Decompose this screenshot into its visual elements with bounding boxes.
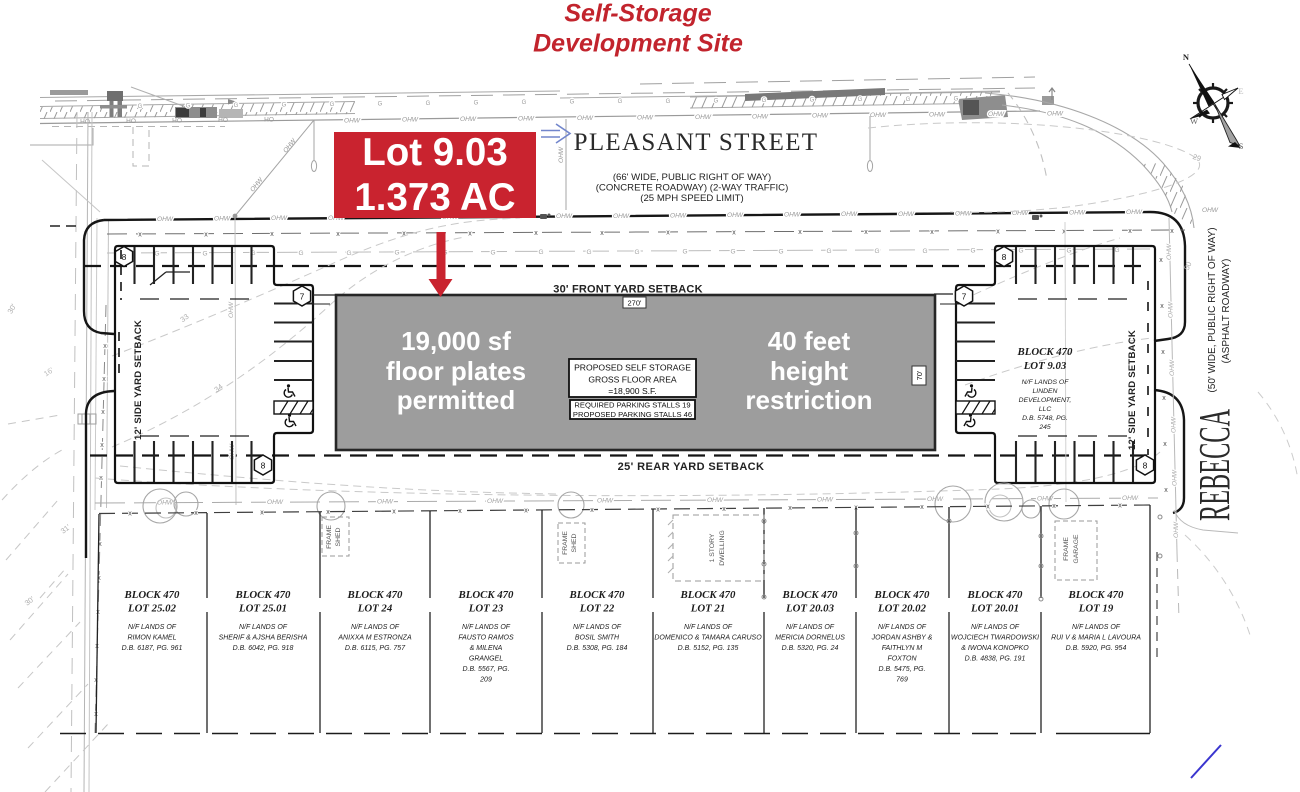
svg-text:G: G <box>954 96 959 102</box>
svg-text:OHW: OHW <box>556 213 573 220</box>
svg-text:G: G <box>1114 247 1119 254</box>
svg-text:N: N <box>1183 52 1190 62</box>
svg-text:OHW: OHW <box>282 137 298 154</box>
svg-text:G: G <box>906 97 911 103</box>
svg-text:OHW: OHW <box>518 116 535 123</box>
svg-text:& IWONA KONOPKO: & IWONA KONOPKO <box>961 645 1029 652</box>
svg-text:G: G <box>426 101 431 107</box>
svg-text:OHW: OHW <box>898 211 915 218</box>
svg-text:OHW: OHW <box>1168 301 1175 318</box>
svg-text:=18,900 S.F.: =18,900 S.F. <box>608 386 657 396</box>
svg-text:OHW: OHW <box>597 498 614 505</box>
svg-text:BLOCK 470: BLOCK 470 <box>347 589 403 601</box>
svg-text:OHW: OHW <box>613 213 630 220</box>
svg-text:FRAME: FRAME <box>562 531 569 555</box>
svg-text:OHW: OHW <box>271 215 288 222</box>
svg-text:restriction: restriction <box>745 385 872 415</box>
svg-text:OHW: OHW <box>670 212 687 219</box>
svg-text:OHW: OHW <box>929 112 946 119</box>
svg-text:G: G <box>826 248 831 255</box>
svg-text:70': 70' <box>915 370 924 380</box>
svg-text:x: x <box>788 505 792 512</box>
svg-text:x: x <box>986 504 990 511</box>
svg-text:29: 29 <box>1191 152 1202 163</box>
svg-text:40 feet: 40 feet <box>768 326 851 356</box>
svg-text:FAUSTO RAMOS: FAUSTO RAMOS <box>458 635 514 642</box>
svg-text:JORDAN ASHBY &: JORDAN ASHBY & <box>871 635 933 642</box>
svg-text:LOT 25.01: LOT 25.01 <box>238 603 287 615</box>
svg-text:G: G <box>186 104 191 110</box>
svg-text:30' FRONT YARD SETBACK: 30' FRONT YARD SETBACK <box>553 284 702 296</box>
svg-text:OHW: OHW <box>1166 243 1173 260</box>
svg-text:OHW: OHW <box>344 118 361 125</box>
svg-text:HO: HO <box>172 118 182 125</box>
svg-text:209: 209 <box>479 677 492 684</box>
svg-text:N/F LANDS OF: N/F LANDS OF <box>878 624 927 631</box>
svg-text:x: x <box>101 409 105 416</box>
svg-text:x: x <box>260 510 264 517</box>
svg-text:OHW: OHW <box>1126 209 1143 216</box>
svg-text:Development Site: Development Site <box>533 30 743 58</box>
svg-text:OHW: OHW <box>841 211 858 218</box>
svg-text:OHW: OHW <box>1069 210 1086 217</box>
svg-text:permitted: permitted <box>397 385 515 415</box>
svg-text:OHW: OHW <box>1202 207 1219 214</box>
svg-text:D.B. 6115, PG. 757: D.B. 6115, PG. 757 <box>345 645 406 652</box>
svg-text:BOSIL SMITH: BOSIL SMITH <box>575 635 620 642</box>
svg-text:x: x <box>590 507 594 514</box>
svg-text:8: 8 <box>122 252 127 262</box>
svg-text:BLOCK 470: BLOCK 470 <box>569 589 625 601</box>
svg-text:G: G <box>714 98 719 104</box>
svg-text:8: 8 <box>261 460 266 470</box>
svg-text:G: G <box>586 249 591 256</box>
svg-text:OHW: OHW <box>752 113 769 120</box>
svg-text:G: G <box>282 103 287 109</box>
svg-text:x: x <box>1062 228 1066 235</box>
svg-text:30': 30' <box>23 594 37 607</box>
svg-text:N/F LANDS OF: N/F LANDS OF <box>128 624 177 631</box>
svg-text:G: G <box>922 248 927 255</box>
svg-text:G: G <box>570 100 575 106</box>
svg-text:G: G <box>682 249 687 256</box>
svg-text:FOXTON: FOXTON <box>887 656 917 663</box>
svg-text:x: x <box>1159 257 1163 264</box>
svg-text:LOT 20.01: LOT 20.01 <box>970 603 1019 615</box>
svg-text:LOT 20.02: LOT 20.02 <box>877 603 927 615</box>
svg-text:OHW: OHW <box>988 111 1005 118</box>
svg-text:LINDEN: LINDEN <box>1033 388 1058 395</box>
svg-text:FRAME: FRAME <box>326 525 333 549</box>
svg-text:50: 50 <box>1182 260 1194 271</box>
svg-text:(25 MPH SPEED LIMIT): (25 MPH SPEED LIMIT) <box>640 193 743 204</box>
svg-text:G: G <box>858 97 863 103</box>
svg-text:x: x <box>1162 395 1166 402</box>
svg-text:30': 30' <box>5 302 18 315</box>
svg-text:LOT 20.03: LOT 20.03 <box>785 603 835 615</box>
svg-text:RIMON KAMEL: RIMON KAMEL <box>127 635 176 642</box>
svg-text:x: x <box>392 508 396 515</box>
svg-text:floor plates: floor plates <box>386 356 526 386</box>
svg-text:x: x <box>930 229 934 236</box>
svg-text:LOT 23: LOT 23 <box>468 603 504 615</box>
svg-text:N/F LANDS OF: N/F LANDS OF <box>971 624 1020 631</box>
svg-text:HO: HO <box>264 117 274 124</box>
svg-text:OHW: OHW <box>707 497 724 504</box>
svg-text:G: G <box>1018 248 1023 255</box>
svg-text:LOT 9.03: LOT 9.03 <box>1023 360 1067 372</box>
svg-text:BLOCK 470: BLOCK 470 <box>458 589 514 601</box>
svg-text:34: 34 <box>212 382 224 394</box>
svg-text:N/F LANDS OF: N/F LANDS OF <box>462 624 511 631</box>
svg-text:D.B. 5748, PG.: D.B. 5748, PG. <box>1022 415 1068 422</box>
svg-text:x: x <box>326 509 330 516</box>
svg-text:OHW: OHW <box>817 497 834 504</box>
svg-text:ANIXXA M ESTRONZA: ANIXXA M ESTRONZA <box>337 635 412 642</box>
svg-text:Lot 9.03: Lot 9.03 <box>362 131 507 174</box>
svg-text:G: G <box>778 248 783 255</box>
svg-text:x: x <box>1170 228 1174 235</box>
svg-text:(CONCRETE ROADWAY) (2-WAY TRAF: (CONCRETE ROADWAY) (2-WAY TRAFFIC) <box>596 183 789 194</box>
svg-text:OHW: OHW <box>955 210 972 217</box>
svg-text:x: x <box>864 229 868 236</box>
svg-text:x: x <box>270 231 274 238</box>
svg-text:OHW: OHW <box>1047 110 1064 117</box>
svg-text:D.B. 5920, PG. 954: D.B. 5920, PG. 954 <box>1066 645 1127 652</box>
svg-text:GRANGEL: GRANGEL <box>469 656 503 663</box>
svg-text:OHW: OHW <box>577 115 594 122</box>
svg-text:G: G <box>522 100 527 106</box>
svg-text:N/F LANDS OF: N/F LANDS OF <box>239 624 288 631</box>
svg-text:x: x <box>600 230 604 237</box>
svg-text:x: x <box>798 229 802 236</box>
svg-text:OHW: OHW <box>214 216 231 223</box>
svg-text:x: x <box>1163 441 1167 448</box>
svg-text:19,000 sf: 19,000 sf <box>401 326 511 356</box>
svg-text:Self-Storage: Self-Storage <box>564 0 711 28</box>
svg-text:OHW: OHW <box>460 116 477 123</box>
svg-text:LOT 24: LOT 24 <box>357 603 393 615</box>
svg-text:OHW: OHW <box>637 115 654 122</box>
svg-text:OHW: OHW <box>1122 495 1139 502</box>
svg-text:RUI V & MARIA L LAVOURA: RUI V & MARIA L LAVOURA <box>1051 635 1141 642</box>
svg-text:LOT 21: LOT 21 <box>690 603 725 615</box>
svg-text:8: 8 <box>1143 460 1148 470</box>
svg-text:x: x <box>102 376 106 383</box>
svg-text:SHED: SHED <box>571 533 578 552</box>
svg-text:N/F LANDS OF: N/F LANDS OF <box>573 624 622 631</box>
svg-text:height: height <box>770 356 848 386</box>
svg-text:x: x <box>732 229 736 236</box>
svg-text:G: G <box>970 248 975 255</box>
svg-text:(ASPHALT ROADWAY): (ASPHALT ROADWAY) <box>1221 259 1232 364</box>
svg-text:BLOCK 470: BLOCK 470 <box>124 589 180 601</box>
svg-text:x: x <box>1128 228 1132 235</box>
svg-text:(66' WIDE, PUBLIC RIGHT OF WAY: (66' WIDE, PUBLIC RIGHT OF WAY) <box>613 172 771 183</box>
svg-text:GROSS FLOOR AREA: GROSS FLOOR AREA <box>588 375 677 385</box>
svg-text:12' SIDE YARD SETBACK: 12' SIDE YARD SETBACK <box>1127 330 1138 450</box>
svg-text:D.B. 4838, PG. 191: D.B. 4838, PG. 191 <box>965 656 1026 663</box>
svg-text:x: x <box>128 511 132 518</box>
svg-text:S: S <box>1239 141 1244 151</box>
svg-text:BLOCK 470: BLOCK 470 <box>782 589 838 601</box>
svg-text:x: x <box>1118 503 1122 510</box>
svg-text:G: G <box>730 249 735 256</box>
svg-text:OHW: OHW <box>249 176 265 193</box>
svg-text:OHW: OHW <box>377 499 394 506</box>
svg-text:33: 33 <box>178 312 190 324</box>
svg-text:x: x <box>656 506 660 513</box>
svg-text:BLOCK 470: BLOCK 470 <box>1017 346 1073 358</box>
svg-text:G: G <box>330 102 335 108</box>
svg-text:OHW: OHW <box>1169 359 1176 376</box>
svg-text:OHW: OHW <box>870 112 887 119</box>
svg-text:E: E <box>1238 86 1243 96</box>
svg-text:G: G <box>474 101 479 107</box>
svg-text:N/F LANDS OF: N/F LANDS OF <box>351 624 400 631</box>
svg-text:25' REAR YARD SETBACK: 25' REAR YARD SETBACK <box>618 461 765 473</box>
svg-text:OHW: OHW <box>228 301 235 318</box>
svg-text:REQUIRED PARKING STALLS 19: REQUIRED PARKING STALLS 19 <box>574 401 690 410</box>
svg-text:G: G <box>810 98 815 104</box>
svg-text:G: G <box>298 250 303 257</box>
svg-text:BLOCK 470: BLOCK 470 <box>1068 589 1124 601</box>
svg-text:FAITHLYN M: FAITHLYN M <box>882 645 923 652</box>
svg-text:N/F LANDS OF: N/F LANDS OF <box>1072 624 1121 631</box>
svg-text:GARAGE: GARAGE <box>1073 534 1080 564</box>
svg-text:OHW: OHW <box>784 212 801 219</box>
svg-text:x: x <box>1161 349 1165 356</box>
svg-text:x: x <box>1052 503 1056 510</box>
svg-text:G: G <box>394 250 399 257</box>
svg-text:1 STORY: 1 STORY <box>709 533 716 562</box>
svg-text:G: G <box>202 250 207 257</box>
svg-text:OHW: OHW <box>487 498 504 505</box>
svg-text:x: x <box>534 230 538 237</box>
svg-text:REBECCA: REBECCA <box>1190 409 1239 521</box>
svg-text:BLOCK 470: BLOCK 470 <box>680 589 736 601</box>
svg-text:OHW: OHW <box>157 216 174 223</box>
svg-text:7: 7 <box>300 292 305 302</box>
svg-text:x: x <box>722 506 726 513</box>
svg-text:x: x <box>920 504 924 511</box>
svg-text:G: G <box>378 102 383 108</box>
svg-text:x: x <box>468 230 472 237</box>
svg-text:D.B. 6042, PG. 918: D.B. 6042, PG. 918 <box>233 645 294 652</box>
svg-text:x: x <box>204 231 208 238</box>
svg-text:BLOCK 470: BLOCK 470 <box>967 589 1023 601</box>
svg-text:D.B. 6187, PG. 961: D.B. 6187, PG. 961 <box>122 645 183 652</box>
svg-text:DOMENICO & TAMARA CARUSO: DOMENICO & TAMARA CARUSO <box>654 635 762 642</box>
svg-text:(50' WIDE, PUBLIC RIGHT OF WAY: (50' WIDE, PUBLIC RIGHT OF WAY) <box>1207 227 1218 392</box>
svg-text:OHW: OHW <box>695 114 712 121</box>
svg-text:& MILENA: & MILENA <box>470 645 503 652</box>
svg-text:G: G <box>634 249 639 256</box>
svg-text:LLC: LLC <box>1039 406 1052 413</box>
svg-text:G: G <box>346 250 351 257</box>
svg-text:31': 31' <box>59 522 73 535</box>
svg-text:x: x <box>524 507 528 514</box>
svg-text:SHED: SHED <box>335 527 342 546</box>
svg-text:G: G <box>874 248 879 255</box>
svg-text:MERICIA DORNELUS: MERICIA DORNELUS <box>775 635 845 642</box>
svg-text:PROPOSED SELF STORAGE: PROPOSED SELF STORAGE <box>574 363 691 373</box>
svg-text:270': 270' <box>628 299 643 308</box>
svg-text:DWELLING: DWELLING <box>719 530 726 566</box>
svg-text:HO: HO <box>218 117 228 124</box>
svg-text:N/F LANDS OF: N/F LANDS OF <box>1022 379 1070 386</box>
svg-text:7: 7 <box>962 292 967 302</box>
svg-text:LOT 19: LOT 19 <box>1078 603 1114 615</box>
svg-text:SHERIF & AJSHA BERISHA: SHERIF & AJSHA BERISHA <box>219 635 308 642</box>
svg-text:D.B. 5152, PG. 135: D.B. 5152, PG. 135 <box>678 645 739 652</box>
svg-text:x: x <box>996 229 1000 236</box>
svg-text:HO: HO <box>126 118 136 125</box>
svg-text:DEVELOPMENT,: DEVELOPMENT, <box>1019 397 1072 404</box>
svg-text:x: x <box>1160 303 1164 310</box>
svg-text:G: G <box>762 98 767 104</box>
svg-text:OHW: OHW <box>727 212 744 219</box>
svg-text:OHW: OHW <box>1171 416 1178 433</box>
svg-text:D.B. 5308, PG. 184: D.B. 5308, PG. 184 <box>567 645 628 652</box>
svg-text:769: 769 <box>896 677 908 684</box>
svg-text:D.B. 5475, PG.: D.B. 5475, PG. <box>878 666 925 673</box>
svg-text:PLEASANT STREET: PLEASANT STREET <box>574 129 819 156</box>
svg-text:OHW: OHW <box>558 146 565 163</box>
svg-text:x: x <box>138 232 142 239</box>
svg-text:G: G <box>1066 247 1071 254</box>
svg-text:LOT 25.02: LOT 25.02 <box>127 603 177 615</box>
svg-text:x: x <box>100 442 104 449</box>
svg-text:D.B. 5320, PG. 24: D.B. 5320, PG. 24 <box>782 645 839 652</box>
svg-text:PROPOSED PARKING STALLS 46: PROPOSED PARKING STALLS 46 <box>573 410 692 419</box>
svg-text:16': 16' <box>42 365 56 378</box>
svg-text:x: x <box>103 343 107 350</box>
svg-text:WOJCIECH TWARDOWSKI: WOJCIECH TWARDOWSKI <box>951 635 1039 642</box>
svg-text:BLOCK 470: BLOCK 470 <box>874 589 930 601</box>
svg-text:G: G <box>538 249 543 256</box>
svg-text:G: G <box>138 104 143 110</box>
svg-text:OHW: OHW <box>267 499 284 506</box>
svg-text:8: 8 <box>1002 252 1007 262</box>
svg-text:x: x <box>336 231 340 238</box>
svg-text:12' SIDE YARD SETBACK: 12' SIDE YARD SETBACK <box>133 320 144 440</box>
svg-text:OHW: OHW <box>1172 469 1179 486</box>
svg-text:FRAME: FRAME <box>1063 537 1070 561</box>
svg-text:OHW: OHW <box>402 117 419 124</box>
svg-text:x: x <box>194 510 198 517</box>
svg-text:D.B. 5567, PG.: D.B. 5567, PG. <box>462 666 509 673</box>
svg-text:N/F LANDS OF: N/F LANDS OF <box>684 624 733 631</box>
svg-text:W: W <box>1190 116 1198 126</box>
svg-text:G: G <box>618 99 623 105</box>
svg-text:LOT 22: LOT 22 <box>579 603 615 615</box>
svg-text:245: 245 <box>1038 424 1051 431</box>
svg-text:G: G <box>666 99 671 105</box>
svg-text:1.373 AC: 1.373 AC <box>354 176 515 219</box>
svg-text:BLOCK 470: BLOCK 470 <box>235 589 291 601</box>
svg-text:G: G <box>234 103 239 109</box>
svg-text:G: G <box>490 249 495 256</box>
svg-text:OHW: OHW <box>1173 521 1180 538</box>
svg-text:x: x <box>458 508 462 515</box>
svg-text:x: x <box>1164 487 1168 494</box>
svg-text:G: G <box>154 251 159 258</box>
svg-text:N/F LANDS OF: N/F LANDS OF <box>786 624 835 631</box>
svg-text:OHW: OHW <box>812 113 829 120</box>
svg-text:x: x <box>666 230 670 237</box>
